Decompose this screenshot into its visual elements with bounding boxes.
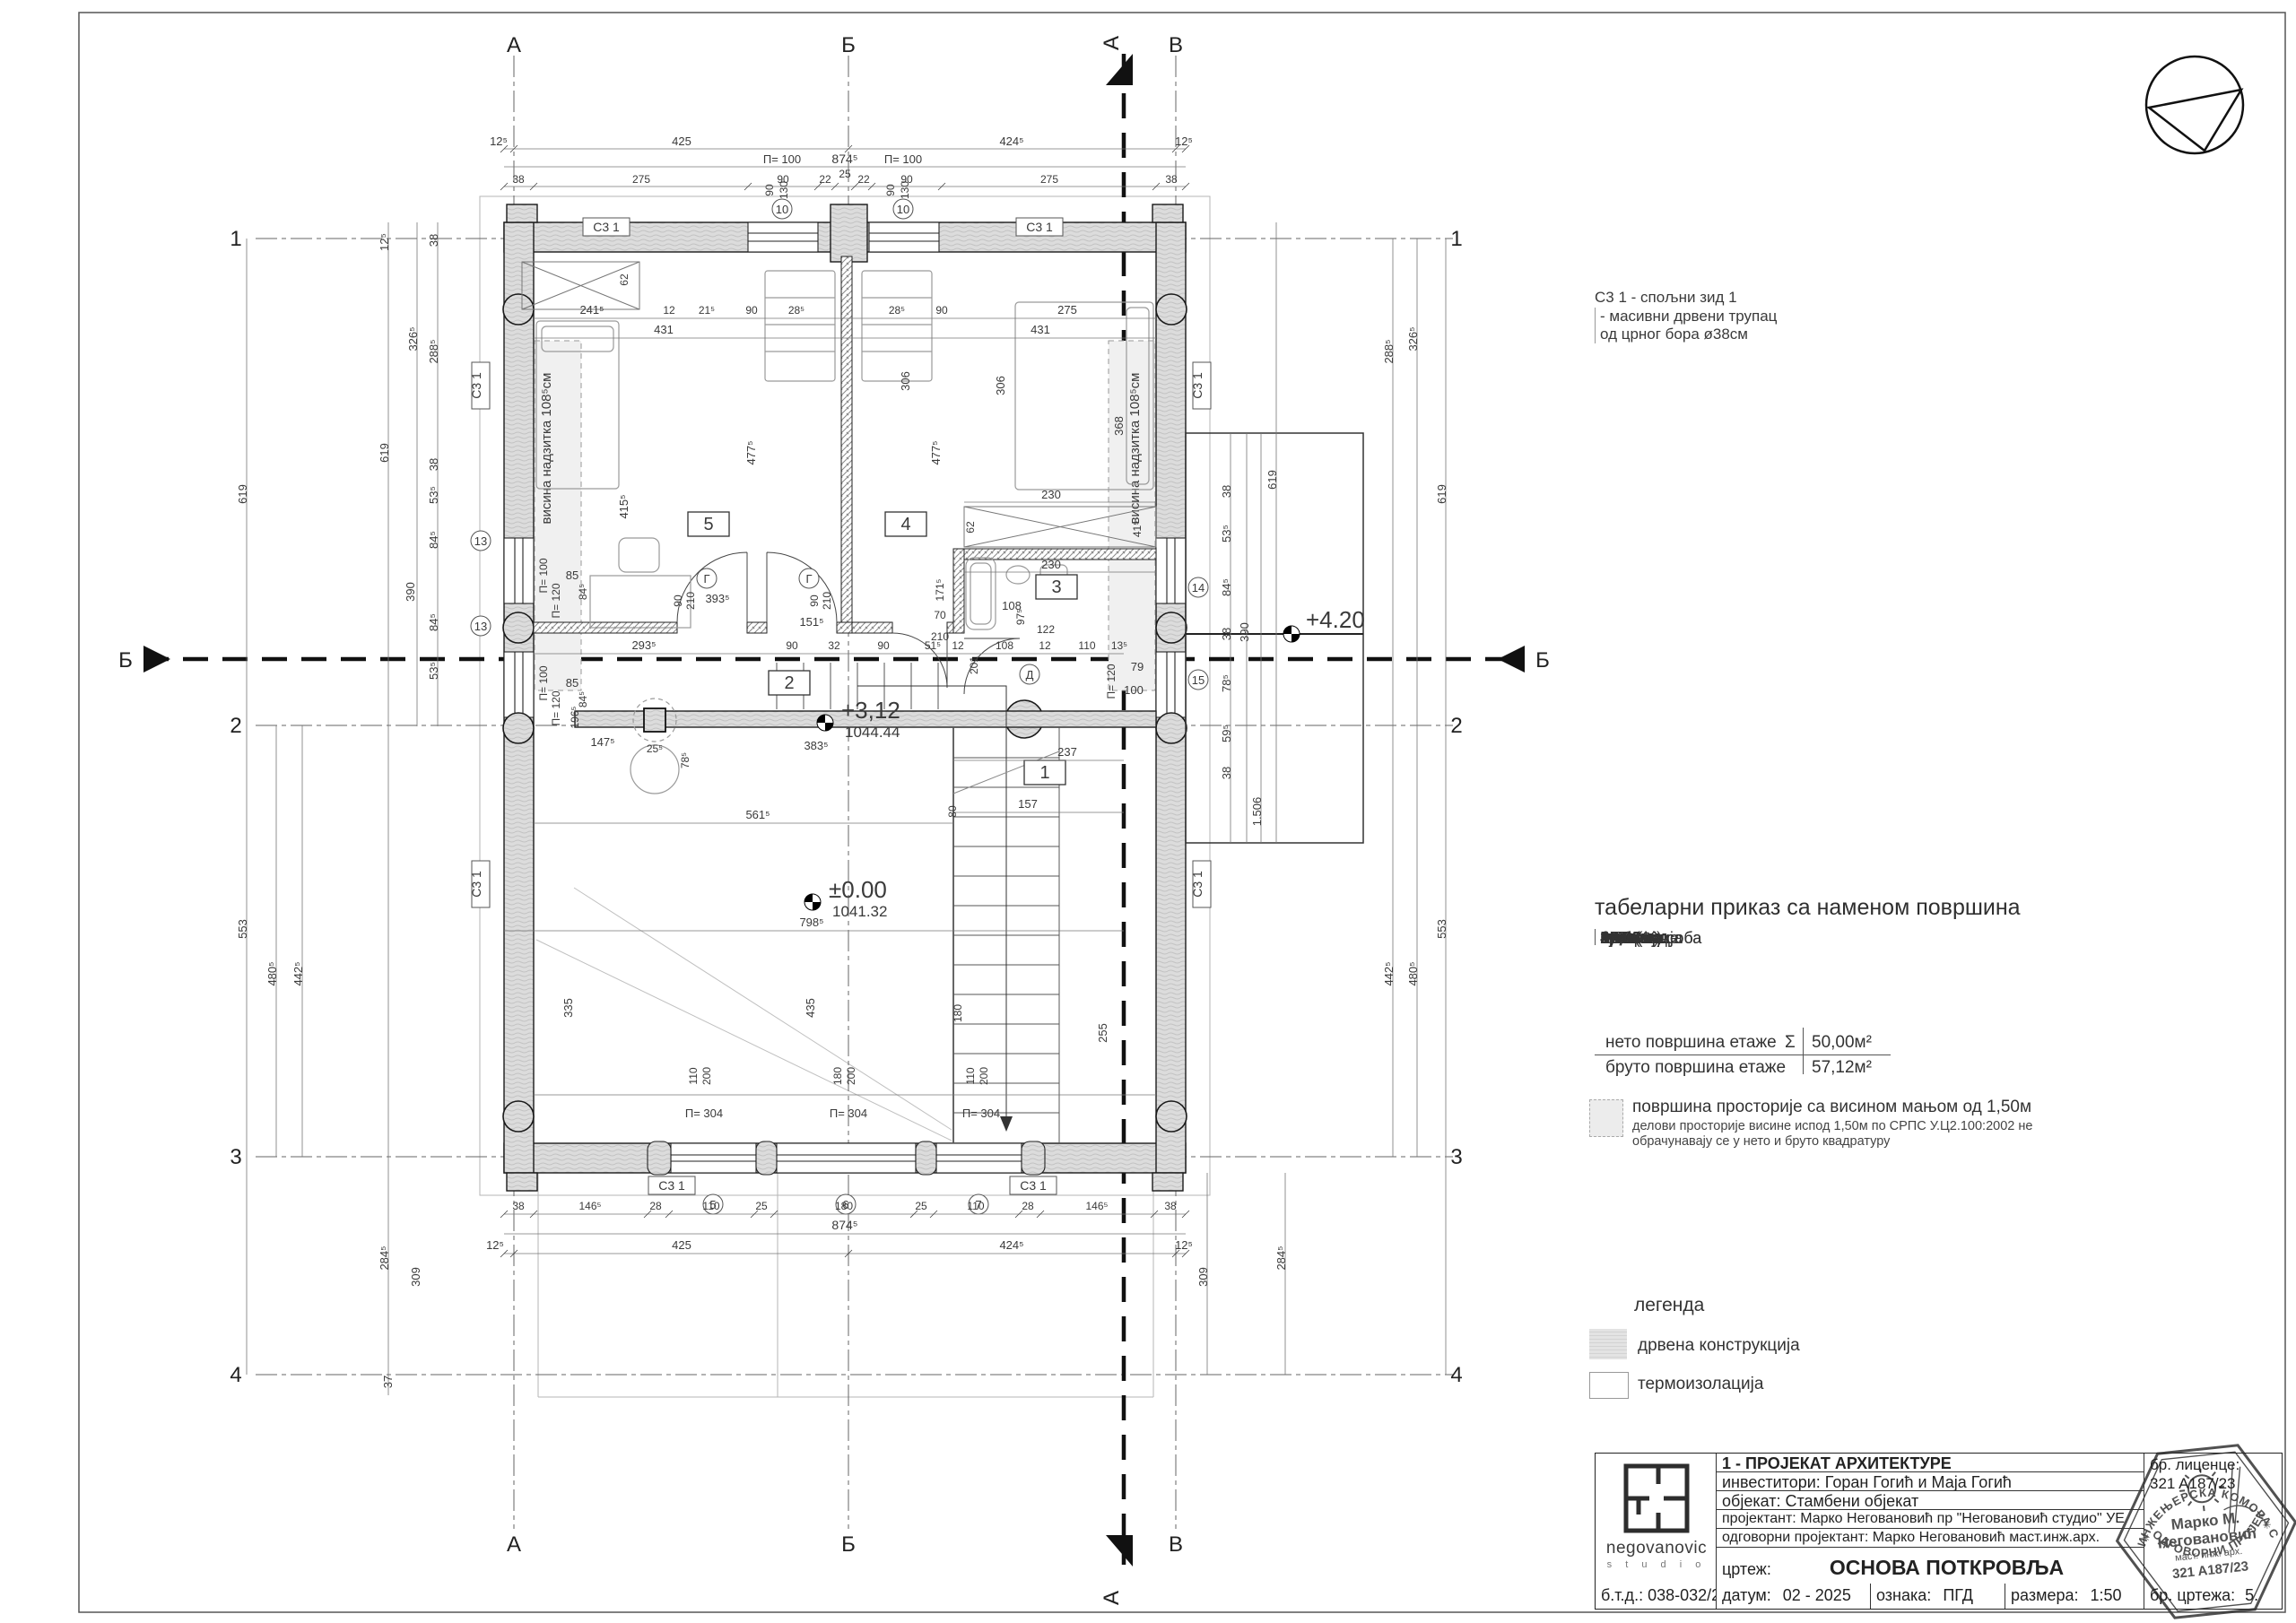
gross-area-value: 57,12м²	[1812, 1058, 1872, 1078]
scale-cell: размера: 1:50	[2005, 1584, 2144, 1609]
low-height-note-title: површина просторије са висином мањом од …	[1632, 1098, 2031, 1117]
sigma-symbol: Σ	[1785, 1033, 1796, 1053]
net-area-value: 50,00м²	[1812, 1033, 1872, 1053]
wood-legend-swatch	[1589, 1329, 1627, 1359]
project-section: 1 - ПРОЈЕКАТ АРХИТЕКТУРЕ	[1717, 1454, 2144, 1472]
gross-area-label: бруто површина етаже	[1605, 1058, 1786, 1078]
drawing-number-cell: бр. цртежа: 5.	[2144, 1584, 2281, 1609]
logo-plan-icon	[1622, 1462, 1691, 1534]
title-block: negovanovic s t u d i o 1 - ПРОЈЕКАТ АРХ…	[1595, 1453, 2283, 1610]
low-height-swatch	[1589, 1099, 1623, 1137]
mark-cell: ознака: ПГД	[1871, 1584, 2005, 1609]
designer: пројектант: Марко Неговановић пр "Негова…	[1717, 1510, 2144, 1529]
low-height-note-body: делови просторије висине испод 1,50м по …	[1632, 1119, 2032, 1150]
responsible-designer: одговорни пројектант: Марко Неговановић …	[1717, 1529, 2144, 1548]
totals-rule	[1595, 1055, 1891, 1055]
studio-logo: negovanovic s t u d i o	[1596, 1454, 1717, 1584]
title-block-rows: 1 - ПРОЈЕКАТ АРХИТЕКТУРЕ инвеститори: Го…	[1717, 1454, 2144, 1584]
totals-divider	[1803, 1028, 1804, 1074]
wood-legend-label: дрвена конструкција	[1638, 1336, 1800, 1356]
wall-type-note-body: - масивни дрвени трупац од црног бора ø3…	[1595, 308, 1777, 343]
drawing-row: цртеж: ОСНОВА ПОТКРОВЉА	[1717, 1548, 2144, 1584]
annotations: С3 1 - спољни зид 1 - масивни дрвени тру…	[0, 0, 2296, 1623]
btd-cell: б.т.д.: 038-032/2024	[1596, 1584, 1717, 1609]
drawing-title: ОСНОВА ПОТКРОВЉА	[1830, 1556, 2064, 1579]
net-area-label: нето површина етаже	[1605, 1033, 1777, 1053]
date-cell: датум: 02 - 2025	[1717, 1584, 1871, 1609]
insulation-legend-swatch	[1589, 1372, 1629, 1399]
insulation-legend-label: термоизолација	[1638, 1375, 1763, 1394]
wall-type-note: С3 1 - спољни зид 1	[1595, 289, 1737, 307]
investors: инвеститори: Горан Гогић и Маја Гогић	[1717, 1472, 2144, 1491]
license-cell: бр. лиценце: 321 A187/23	[2144, 1454, 2281, 1584]
drawing-sheet: А Б В А Б В 1 2 3 4 1 2 3 4 А А Б Б	[0, 0, 2296, 1623]
object: објекат: Стамбени објекат	[1717, 1491, 2144, 1510]
area-table-title: табеларни приказ са наменом површина	[1595, 895, 2021, 921]
legend-title: легенда	[1634, 1295, 1704, 1316]
